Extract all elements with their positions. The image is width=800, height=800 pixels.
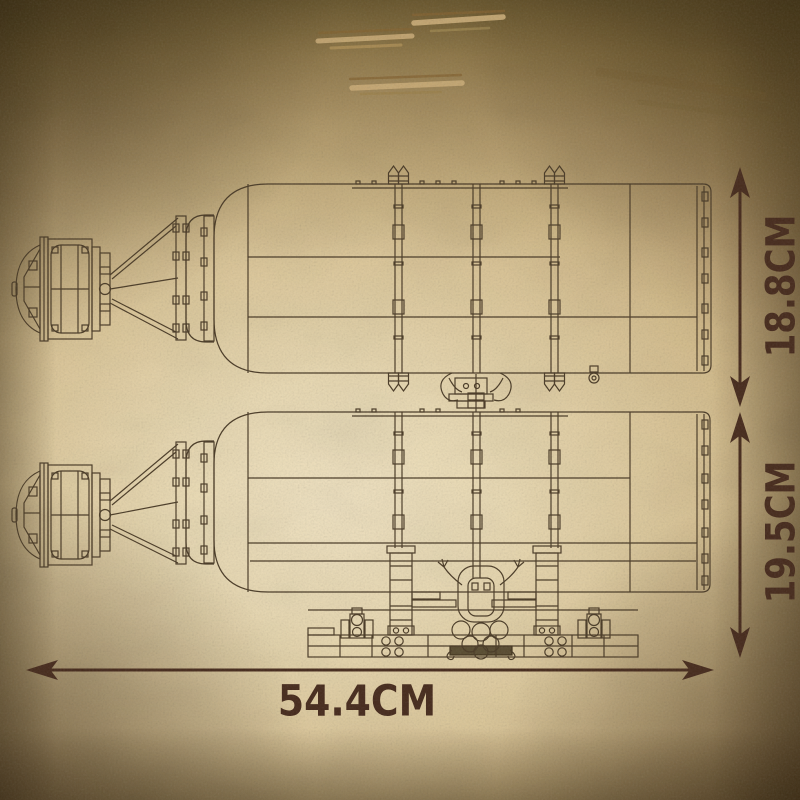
dimension-label-overall-width: 54.4CM xyxy=(278,676,436,726)
dimension-label-height-side-view: 19.5CM xyxy=(758,461,800,604)
diagram-canvas: 18.8CM 19.5CM 54.4CM xyxy=(0,0,800,800)
dimension-label-height-top-view: 18.8CM xyxy=(758,215,800,358)
